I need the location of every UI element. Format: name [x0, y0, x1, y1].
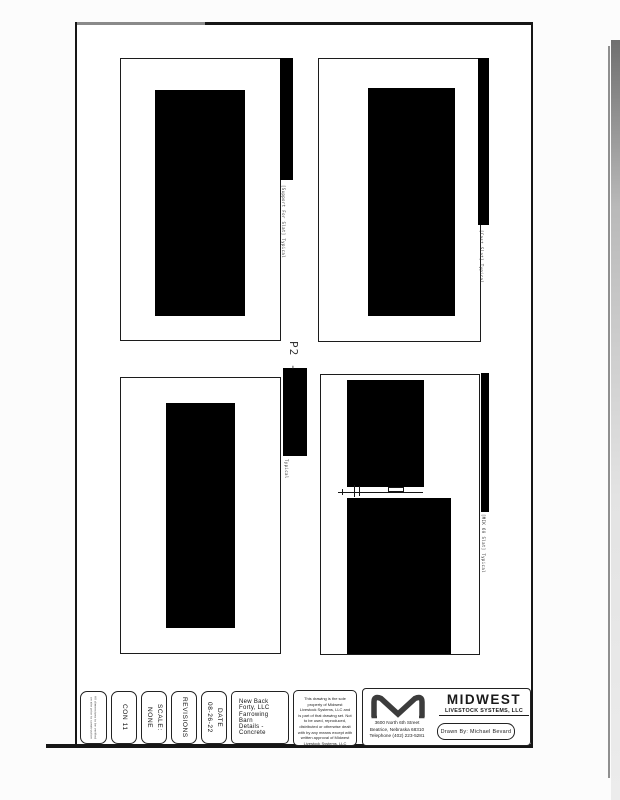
date-box: DATE 08-26-22: [201, 691, 227, 744]
company-address: 3600 North 6th Street Beatrice, Nebraska…: [365, 720, 429, 740]
caption-top-right: [Cast Slat] Typical: [479, 230, 484, 283]
project-info-box: New Back Forty, LLC Farrowing Barn Detai…: [231, 691, 289, 744]
company-block: MIDWEST LIVESTOCK SYSTEMS, LLC 3600 Nort…: [362, 688, 531, 746]
section-bar-top-left: [280, 58, 293, 180]
joint-detail-tick: [359, 486, 360, 496]
section-bar-bottom-right: [481, 373, 489, 512]
detail-block-bottom-left: [166, 403, 235, 628]
fine-print-box: All dimensions to be verified on site pr…: [80, 691, 107, 744]
caption-bottom-right: [MIK 60 Slat] Typical: [481, 514, 486, 573]
detail-block-top-right: [368, 88, 455, 316]
drawn-by-box: Drawn By: Michael Bevard: [437, 723, 515, 740]
brand-subname: LIVESTOCK SYSTEMS, LLC: [439, 708, 529, 716]
scan-edge-shadow-band: [611, 40, 620, 800]
midwest-m-logo-icon: [367, 693, 429, 719]
joint-detail-line: [338, 492, 423, 493]
detail-number-label: P2 -: [287, 341, 300, 372]
caption-center: Typical: [284, 459, 289, 479]
disclaimer-box: This drawing is the sole property of Mid…: [293, 690, 357, 746]
detail-block-bottom-right-lower: [347, 498, 451, 654]
caption-top-left: [Support For Slat] Typical: [281, 185, 286, 258]
sheet-number-box: CON 11: [111, 691, 137, 744]
project-client: New Back Forty, LLC: [239, 699, 283, 711]
revisions-box: REVISIONS: [171, 691, 197, 744]
scale-box: SCALE: NONE: [141, 691, 167, 744]
detail-block-bottom-right-upper: [347, 380, 424, 487]
scan-border-stub: [46, 744, 78, 748]
detail-block-top-left: [155, 90, 245, 316]
project-building: Farrowing Barn: [239, 712, 283, 724]
scan-edge-shadow-line: [608, 46, 610, 778]
joint-detail-plate: [388, 487, 404, 492]
detail-block-center: [283, 368, 307, 456]
joint-detail-tick: [354, 485, 355, 497]
scan-smudge: [77, 22, 205, 25]
brand-name: MIDWEST: [439, 692, 529, 707]
section-bar-top-right: [478, 58, 489, 225]
scanned-drawing-page: { "drawing": { "detail_number": "P2 -", …: [0, 0, 620, 800]
project-sheet-title: Details - Concrete: [239, 724, 283, 736]
joint-detail-tick: [342, 489, 343, 495]
